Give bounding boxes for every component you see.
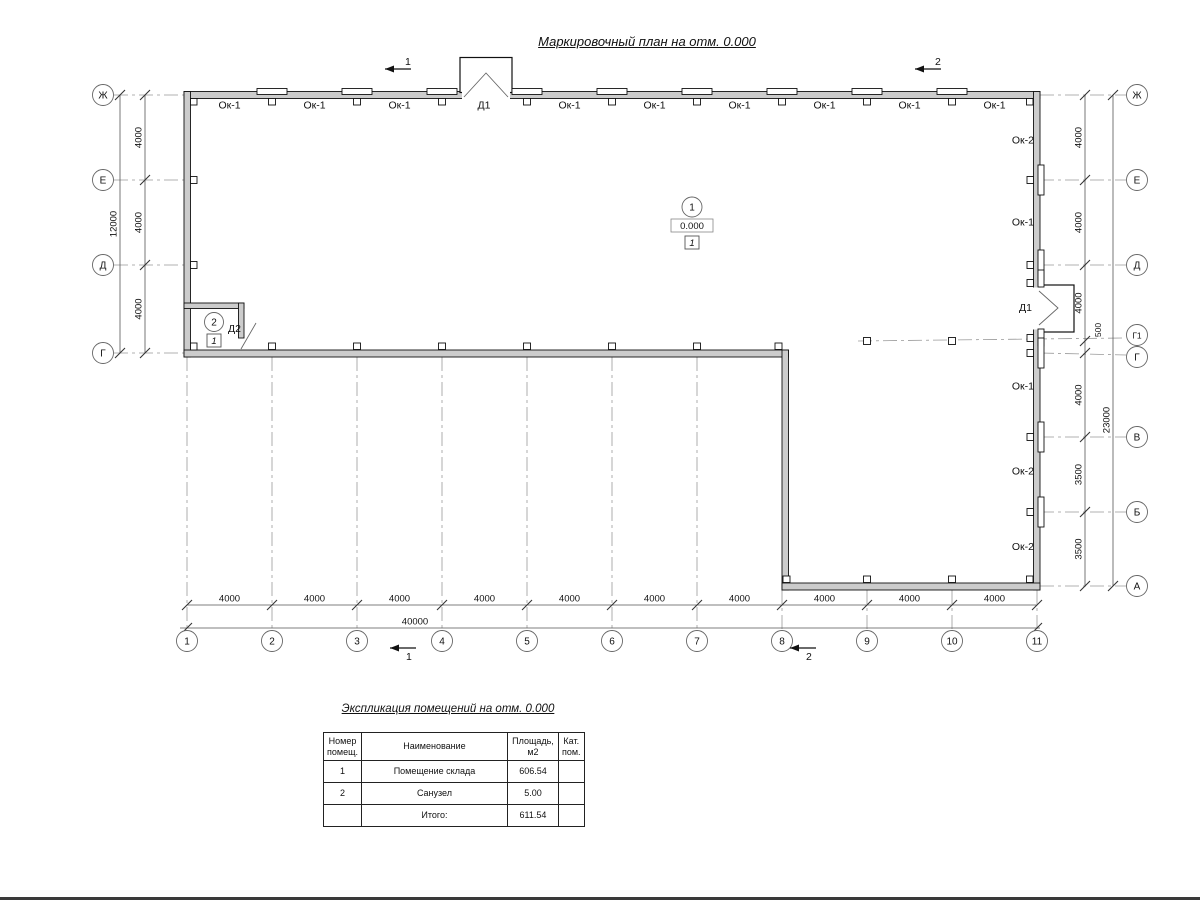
header-name: Наименование xyxy=(361,733,507,761)
total-cat-empty xyxy=(558,805,584,827)
window-label: Ок-1 xyxy=(1012,381,1034,393)
dim-bottom-7: 4000 xyxy=(729,594,750,605)
dim-left-1: 4000 xyxy=(134,127,145,148)
row1-number: 1 xyxy=(324,761,362,783)
dim-right-5: 3500 xyxy=(1074,464,1085,485)
section-mark-top-1: 1 xyxy=(385,56,411,73)
svg-text:7: 7 xyxy=(694,637,700,648)
svg-text:2: 2 xyxy=(269,637,275,648)
axis-bottom-3: 3 xyxy=(347,631,368,652)
dim-bottom-total: 40000 xyxy=(402,617,428,628)
axis-bottom-6: 6 xyxy=(602,631,623,652)
door-label-d1-top: Д1 xyxy=(478,100,491,112)
svg-text:Е: Е xyxy=(1134,176,1141,187)
window-label: Ок-1 xyxy=(1012,217,1034,229)
table-total-row: Итого: 611.54 xyxy=(324,805,585,827)
axis-bottom-8: 8 xyxy=(772,631,793,652)
dim-left-3: 4000 xyxy=(134,298,145,319)
window-label: Ок-1 xyxy=(218,100,240,112)
door-label-d2: Д2 xyxy=(228,323,241,335)
axis-right-zh: Ж xyxy=(1127,85,1148,106)
dim-left-2: 4000 xyxy=(134,212,145,233)
svg-text:А: А xyxy=(1134,582,1141,593)
svg-text:1: 1 xyxy=(406,651,412,663)
dim-bottom-1: 4000 xyxy=(219,594,240,605)
row2-area: 5.00 xyxy=(507,783,558,805)
table-row: 1 Помещение склада 606.54 xyxy=(324,761,585,783)
svg-text:9: 9 xyxy=(864,637,870,648)
header-area: Площадь, м2 xyxy=(507,733,558,761)
axis-right-g: Г xyxy=(1127,347,1148,368)
dim-right-3: 4000 xyxy=(1074,292,1085,313)
axis-bottom-10: 10 xyxy=(942,631,963,652)
opening-labels: Ок-1 Ок-1 Ок-1 Д1 Ок-1 Ок-1 Ок-1 Ок-1 Ок… xyxy=(218,100,1034,554)
axis-right-b: Б xyxy=(1127,502,1148,523)
axis-bottom-4: 4 xyxy=(432,631,453,652)
window-label: Ок-2 xyxy=(1012,135,1034,147)
axis-bottom-1: 1 xyxy=(177,631,198,652)
dim-right-1: 4000 xyxy=(1074,127,1085,148)
svg-text:8: 8 xyxy=(779,637,785,648)
svg-text:2: 2 xyxy=(806,651,812,663)
svg-text:Г: Г xyxy=(1134,353,1140,364)
room2-number: 2 xyxy=(211,318,217,329)
svg-text:В: В xyxy=(1134,433,1141,444)
svg-text:2: 2 xyxy=(935,56,941,68)
window-label: Ок-1 xyxy=(813,100,835,112)
floor-plan: 4000 4000 4000 12000 4000 4000 4000 500 … xyxy=(0,0,1200,900)
svg-text:Ж: Ж xyxy=(98,91,108,102)
dim-bottom-6: 4000 xyxy=(644,594,665,605)
room1-elevation: 0.000 xyxy=(680,221,704,232)
right-entrance xyxy=(1033,285,1074,332)
axis-right-d: Д xyxy=(1127,255,1148,276)
svg-text:1: 1 xyxy=(184,637,190,648)
table-title: Экспликация помещений на отм. 0.000 xyxy=(318,703,578,715)
window-label: Ок-1 xyxy=(983,100,1005,112)
axis-left-g: Г xyxy=(93,343,114,364)
svg-text:Г: Г xyxy=(100,349,106,360)
door-label-d1-right: Д1 xyxy=(1019,302,1032,314)
total-label: Итого: xyxy=(361,805,507,827)
room2-floor-type: 1 xyxy=(211,336,216,347)
window-label: Ок-1 xyxy=(728,100,750,112)
axis-left-d: Д xyxy=(93,255,114,276)
axis-left-e: Е xyxy=(93,170,114,191)
window-label: Ок-2 xyxy=(1012,466,1034,478)
axis-right-g1: Г1 xyxy=(1127,325,1148,346)
top-entrance xyxy=(460,58,512,100)
axis-bottom-9: 9 xyxy=(857,631,878,652)
table-row: 2 Санузел 5.00 xyxy=(324,783,585,805)
svg-text:Б: Б xyxy=(1134,508,1141,519)
window-label: Ок-2 xyxy=(1012,541,1034,553)
window-label: Ок-1 xyxy=(303,100,325,112)
drawing-canvas: Маркировочный план на отм. 0.000 xyxy=(0,0,1200,900)
row1-cat xyxy=(558,761,584,783)
section-mark-bottom-1: 1 xyxy=(390,645,416,664)
table-header-row: Номер помещ. Наименование Площадь, м2 Ка… xyxy=(324,733,585,761)
svg-text:6: 6 xyxy=(609,637,615,648)
dimension-lines xyxy=(120,95,1113,628)
svg-text:3: 3 xyxy=(354,637,360,648)
svg-text:4: 4 xyxy=(439,637,445,648)
dim-right-total: 23000 xyxy=(1102,407,1113,433)
axis-right-v: В xyxy=(1127,427,1148,448)
svg-text:Е: Е xyxy=(100,176,107,187)
axis-left-zh: Ж xyxy=(93,85,114,106)
svg-text:Г1: Г1 xyxy=(1132,331,1142,341)
row1-area: 606.54 xyxy=(507,761,558,783)
row2-number: 2 xyxy=(324,783,362,805)
header-cat: Кат. пом. xyxy=(558,733,584,761)
window-label: Ок-1 xyxy=(898,100,920,112)
dim-bottom-4: 4000 xyxy=(474,594,495,605)
dim-left-total: 12000 xyxy=(109,211,120,237)
axis-bottom-5: 5 xyxy=(517,631,538,652)
axis-grid-lines xyxy=(114,95,1126,631)
axis-bottom-7: 7 xyxy=(687,631,708,652)
window-label: Ок-1 xyxy=(388,100,410,112)
dim-right-2: 4000 xyxy=(1074,212,1085,233)
section-mark-top-2: 2 xyxy=(915,56,941,73)
svg-text:10: 10 xyxy=(946,637,958,648)
room1-number: 1 xyxy=(689,203,695,214)
dimension-texts: 4000 4000 4000 12000 4000 4000 4000 500 … xyxy=(109,127,1113,628)
window-label: Ок-1 xyxy=(558,100,580,112)
dim-bottom-10: 4000 xyxy=(984,594,1005,605)
total-empty xyxy=(324,805,362,827)
svg-text:11: 11 xyxy=(1032,637,1043,648)
section-mark-bottom-2: 2 xyxy=(790,645,816,664)
dim-bottom-9: 4000 xyxy=(899,594,920,605)
dim-bottom-2: 4000 xyxy=(304,594,325,605)
room2-marker: 2 1 xyxy=(205,313,224,348)
axis-right-e: Е xyxy=(1127,170,1148,191)
axis-right-a: А xyxy=(1127,576,1148,597)
row2-name: Санузел xyxy=(361,783,507,805)
room1-floor-type: 1 xyxy=(689,238,694,249)
row2-cat xyxy=(558,783,584,805)
dim-right-4: 4000 xyxy=(1074,384,1085,405)
svg-text:Д: Д xyxy=(1134,261,1141,272)
axis-markers: Ж Е Д Г Ж Е Д Г1 Г В Б А 1 2 3 4 5 6 7 8… xyxy=(93,85,1148,652)
explication-table: Номер помещ. Наименование Площадь, м2 Ка… xyxy=(323,732,585,827)
room1-marker: 1 0.000 1 xyxy=(671,197,713,249)
window-label: Ок-1 xyxy=(643,100,665,112)
svg-text:Ж: Ж xyxy=(1132,91,1142,102)
svg-text:1: 1 xyxy=(405,56,411,68)
total-value: 611.54 xyxy=(507,805,558,827)
section-markers: 1 2 1 2 xyxy=(385,56,941,663)
dimension-ticks xyxy=(115,90,1118,633)
dim-right-offset: 500 xyxy=(1093,323,1103,337)
row1-name: Помещение склада xyxy=(361,761,507,783)
header-number: Номер помещ. xyxy=(324,733,362,761)
svg-text:Д: Д xyxy=(100,261,107,272)
axis-bottom-11: 11 xyxy=(1027,631,1048,652)
dim-bottom-3: 4000 xyxy=(389,594,410,605)
dim-bottom-8: 4000 xyxy=(814,594,835,605)
svg-text:5: 5 xyxy=(524,637,530,648)
dim-right-6: 3500 xyxy=(1074,538,1085,559)
axis-bottom-2: 2 xyxy=(262,631,283,652)
dim-bottom-5: 4000 xyxy=(559,594,580,605)
